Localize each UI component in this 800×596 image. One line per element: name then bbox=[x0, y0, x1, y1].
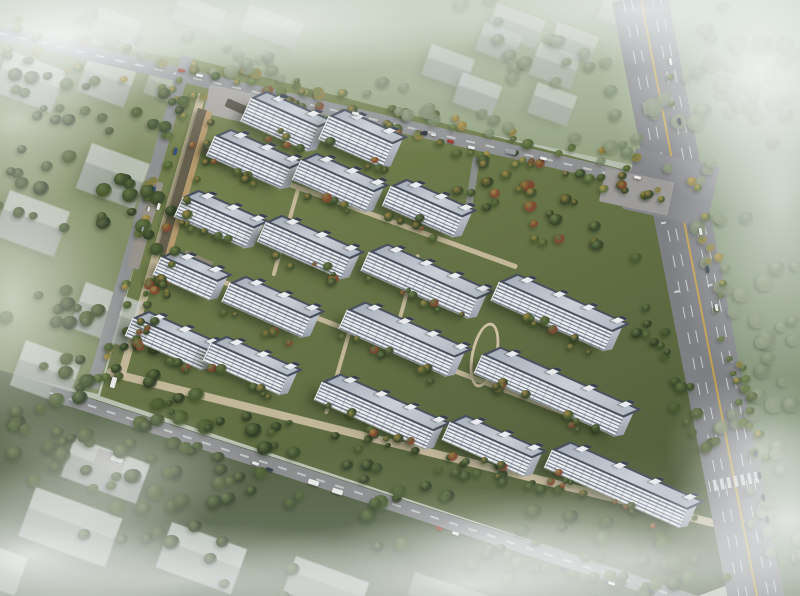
aerial-rendering-canvas bbox=[0, 0, 800, 596]
tree-cluster bbox=[690, 220, 706, 235]
turn-arrow bbox=[694, 215, 699, 218]
car bbox=[705, 266, 709, 273]
tree-cluster bbox=[698, 236, 706, 243]
tree-cluster bbox=[687, 177, 697, 186]
car bbox=[698, 228, 702, 235]
